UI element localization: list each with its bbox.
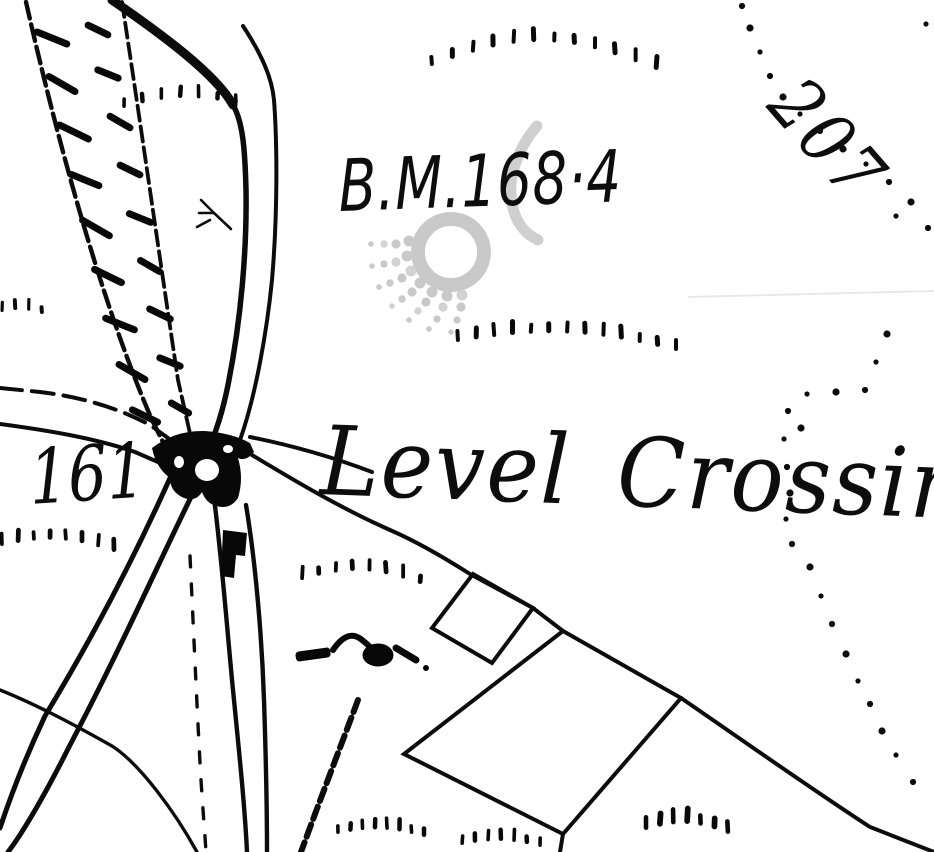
fence-bottom-right (681, 698, 934, 852)
road-south-right-edge (246, 505, 267, 852)
field-diamond-tail (560, 834, 563, 852)
field-boundary-southwest (0, 690, 197, 852)
boundary-dashed-south (190, 556, 206, 852)
enclosure-small (432, 574, 533, 663)
level-crossing-label: Level Crossing (319, 413, 934, 536)
map-canvas: osi watermark (0, 0, 934, 852)
scan-artifact-line (688, 291, 934, 297)
building-footprint (221, 530, 247, 578)
railway-ne-embankment (26, 2, 191, 448)
level-crossing-junction (152, 431, 254, 507)
railway-sw (0, 478, 193, 852)
tree-symbol (197, 200, 231, 229)
watermark-ring (418, 219, 484, 285)
rock-scrub-cluster (296, 636, 429, 671)
field-diamond (404, 631, 681, 834)
benchmark-label: B.M.168·4 (338, 140, 622, 222)
railway-hachures (37, 25, 188, 422)
spot-height-161: 161 (28, 432, 147, 515)
road-north-west-edge (207, 105, 246, 452)
railway-sw-edge-2 (8, 493, 193, 852)
